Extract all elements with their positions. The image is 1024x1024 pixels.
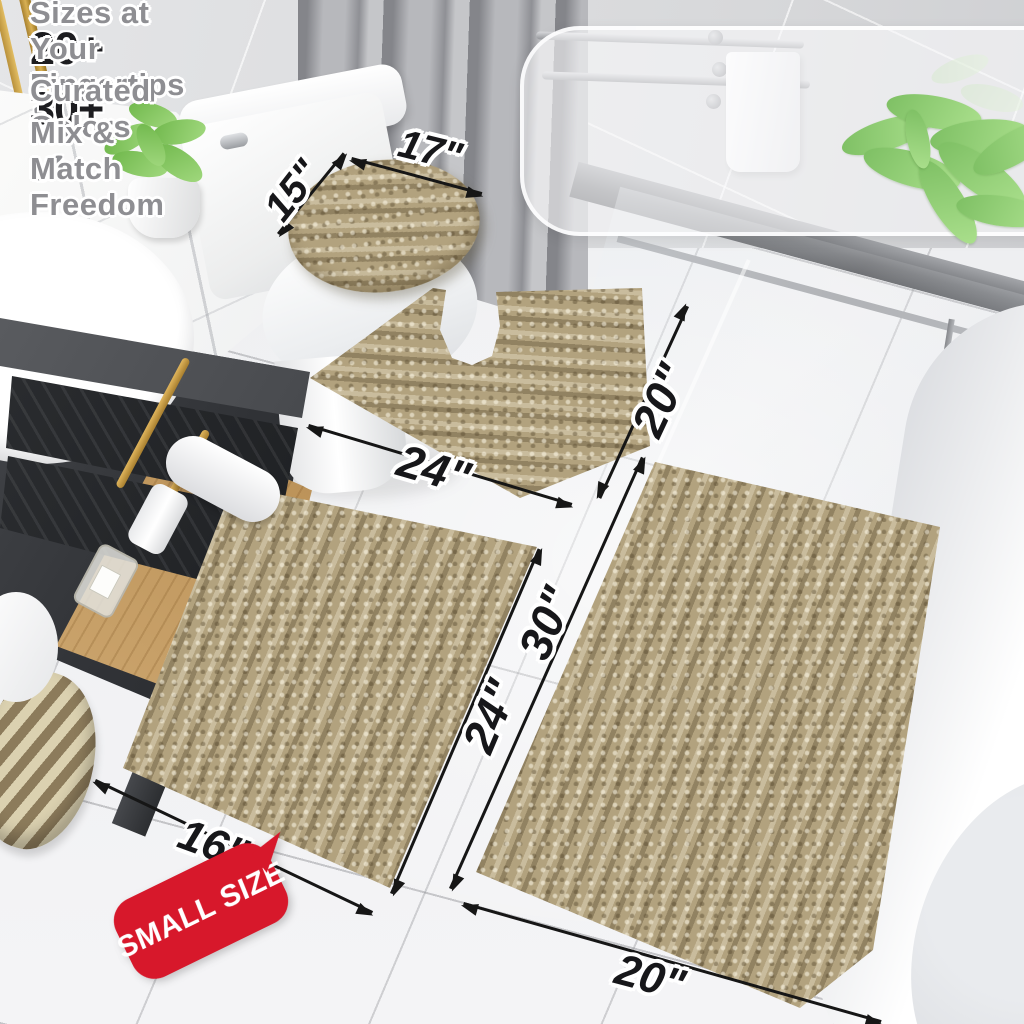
bathroom-product-scene: 15" 17" 20" 24" 24" 30" 16" 20" ✔ 20+ Si… <box>0 0 1024 1024</box>
feature-label: Mix & Match Freedom <box>30 115 164 223</box>
